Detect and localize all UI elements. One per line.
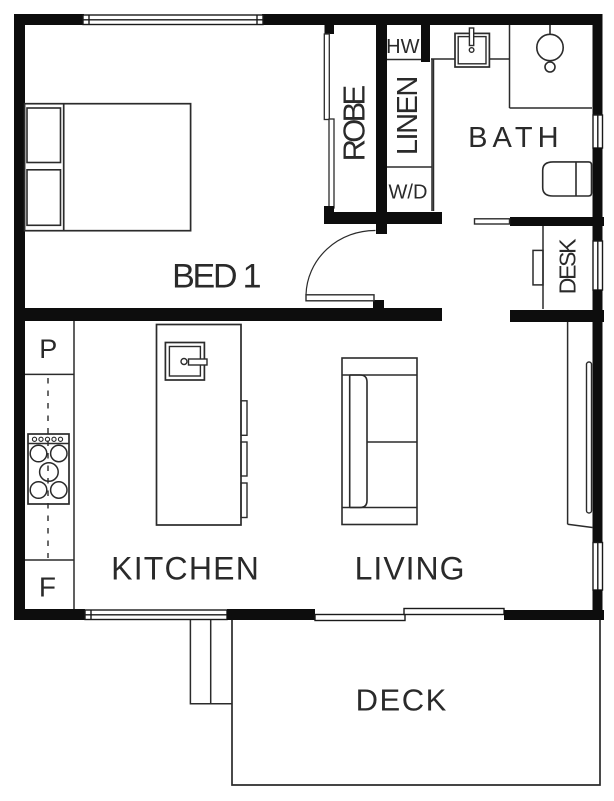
svg-text:DESK: DESK: [555, 238, 581, 294]
svg-text:BED 1: BED 1: [172, 258, 261, 296]
svg-text:P: P: [39, 334, 57, 364]
svg-text:F: F: [39, 572, 56, 603]
svg-text:KITCHEN: KITCHEN: [111, 550, 260, 586]
svg-text:LINEN: LINEN: [392, 77, 424, 155]
svg-text:DECK: DECK: [356, 683, 448, 718]
svg-text:W/D: W/D: [389, 182, 428, 204]
svg-text:BATH: BATH: [468, 122, 564, 154]
svg-text:LIVING: LIVING: [355, 550, 466, 586]
svg-text:ROBE: ROBE: [337, 86, 372, 162]
svg-text:HW: HW: [386, 36, 419, 58]
